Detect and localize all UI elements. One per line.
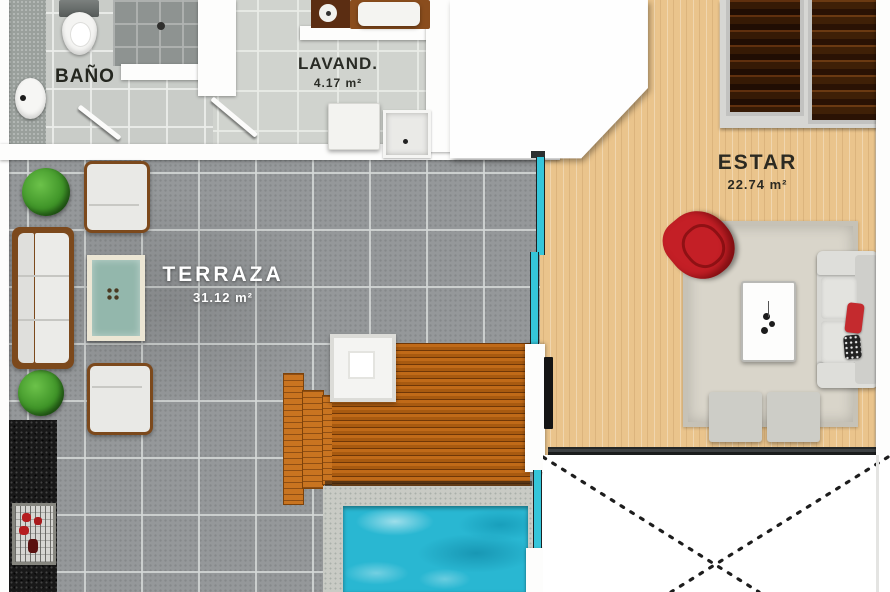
sofa-red-pillow <box>844 302 865 334</box>
stair-flight-left <box>726 0 804 116</box>
deck-table-top <box>348 351 375 379</box>
toilet <box>59 0 99 56</box>
laundry-sink-drain <box>403 139 408 144</box>
lavanderia-area: 4.17 m² <box>278 76 398 90</box>
floor-plan: BAÑO LAVAND. 4.17 m² TERRAZA 31.12 m² ES… <box>0 0 890 592</box>
pool-water <box>343 506 528 592</box>
lower-void <box>543 455 890 592</box>
armchair-bottom-seam <box>92 386 142 388</box>
terrace-sofa <box>12 227 74 369</box>
plant-bottom <box>18 370 64 416</box>
glass-panel-2 <box>530 252 539 346</box>
laundry-cabinet <box>311 0 350 28</box>
wall-bath-right <box>198 0 236 96</box>
terrace-coffee-table <box>87 255 145 341</box>
void-right-edge <box>876 455 879 592</box>
upper-void-shadow-wrap <box>450 0 652 160</box>
deck-step-1 <box>283 373 304 505</box>
bench-cushion <box>358 2 420 26</box>
red-armchair-cushion <box>674 216 733 275</box>
plant-top <box>22 168 70 216</box>
grill <box>12 503 56 565</box>
sofa-pattern-pillow <box>843 334 862 359</box>
estar-area: 22.74 m² <box>710 177 805 192</box>
bano-name: BAÑO <box>55 66 115 87</box>
staircase <box>720 0 880 128</box>
glass-panel-3 <box>533 470 542 550</box>
table-decor-stem <box>768 301 769 317</box>
grill-food-3 <box>19 526 29 535</box>
estar-coffee-table <box>741 281 796 362</box>
terrace-sofa-seam-2 <box>18 319 69 321</box>
washing-machine <box>328 103 380 150</box>
outer-wall-left <box>0 0 9 592</box>
estar-name: ESTAR <box>718 151 798 174</box>
wall-pier <box>525 344 545 472</box>
bath-sink <box>15 78 46 119</box>
grill-food-1 <box>22 513 31 522</box>
lavanderia-name: LAVAND. <box>298 54 378 73</box>
terrace-sofa-seats <box>35 233 69 363</box>
void-dashed-lines <box>543 455 890 592</box>
terrace-sofa-back <box>18 233 34 363</box>
estar-window-band <box>548 447 878 455</box>
terrace-armchair-top <box>84 161 150 233</box>
shower-drain <box>157 22 165 30</box>
stair-flight-right <box>808 0 882 124</box>
tv <box>544 357 553 429</box>
table-decor-dot-3 <box>761 327 768 334</box>
laundry-bench <box>350 0 430 29</box>
laundry-sink <box>383 110 431 158</box>
deck-table <box>330 334 396 402</box>
label-bano: BAÑO <box>48 66 122 88</box>
shower-floor <box>113 0 200 66</box>
bath-sink-drain <box>20 95 26 101</box>
table-decor-dot-2 <box>769 321 775 327</box>
estar-sofa <box>817 251 878 388</box>
toilet-bowl-inner <box>70 22 91 47</box>
grill-food-2 <box>34 517 42 525</box>
bathroom-vanity-counter <box>8 0 46 148</box>
ottoman-2 <box>767 392 820 442</box>
label-terraza: TERRAZA 31.12 m² <box>156 263 290 305</box>
ottoman-1 <box>709 392 762 442</box>
armchair-top-seam <box>89 204 139 206</box>
cabinet-knob-dot <box>326 11 331 16</box>
grill-food-4 <box>28 539 38 553</box>
upper-void <box>450 0 652 160</box>
deck-step-2 <box>302 390 324 489</box>
label-lavanderia: LAVAND. 4.17 m² <box>278 54 398 90</box>
glass-panel-1 <box>536 157 545 255</box>
terrace-armchair-bottom <box>87 363 153 435</box>
outer-wall-right <box>876 0 890 458</box>
terraza-name: TERRAZA <box>162 263 283 286</box>
label-estar: ESTAR 22.74 m² <box>710 151 805 192</box>
terrace-sofa-seam-1 <box>18 275 69 277</box>
table-centerpiece <box>106 287 120 301</box>
terraza-area: 31.12 m² <box>156 290 290 305</box>
